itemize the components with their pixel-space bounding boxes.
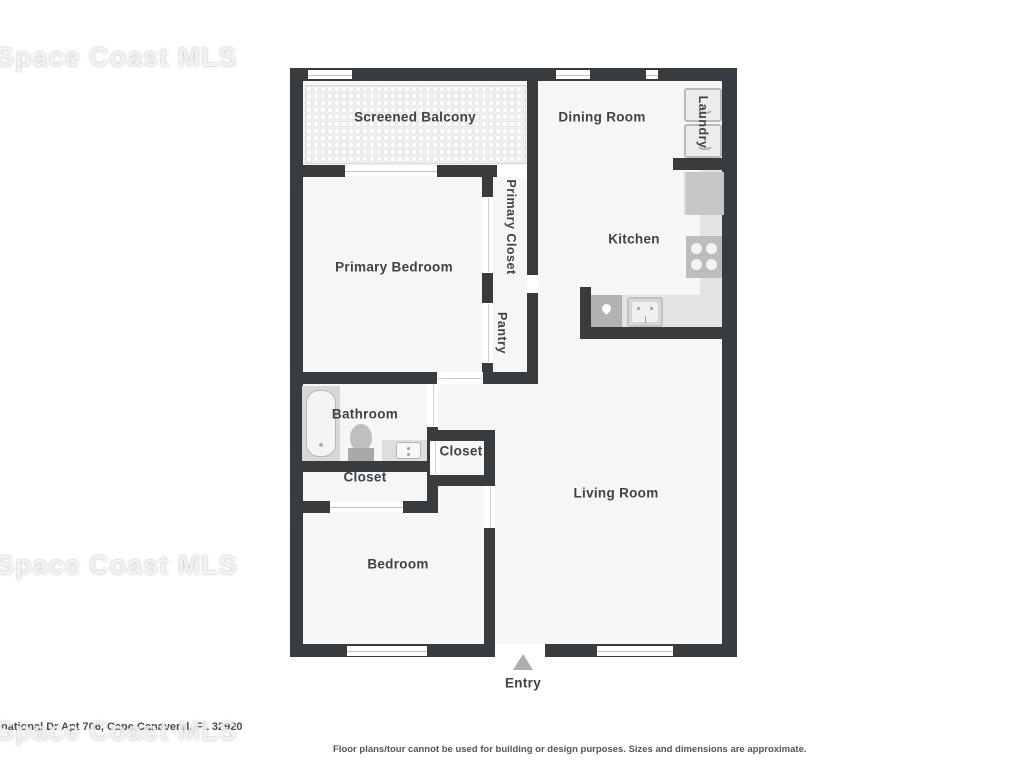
- kitchen-sink-icon: [627, 297, 663, 327]
- wall: [403, 501, 437, 513]
- window: [345, 166, 437, 176]
- disclaimer-text: Floor plans/tour cannot be used for buil…: [333, 744, 807, 755]
- window: [597, 646, 673, 656]
- toilet-tank: [348, 448, 374, 461]
- bathroom-sink-icon: [396, 442, 421, 459]
- floor-plan-page: Space Coast MLS Space Coast MLS Space Co…: [0, 0, 1024, 768]
- room-label-primary-bedroom: Primary Bedroom: [335, 260, 453, 275]
- entry-arrow-icon: [513, 654, 533, 670]
- stove-icon: [686, 236, 722, 278]
- faucet-dot: [637, 307, 640, 310]
- room-label-pantry: Pantry: [495, 312, 509, 354]
- room-label-bedroom: Bedroom: [367, 557, 428, 572]
- window: [308, 70, 352, 79]
- room-label-primary-closet: Primary Closet: [504, 179, 518, 274]
- room-label-closet-hall: Closet: [439, 444, 482, 459]
- window: [330, 502, 403, 512]
- door-gap: [497, 165, 527, 177]
- kitchen-sink-cabinet: [591, 295, 622, 327]
- watermark-space-coast-mls: Space Coast MLS: [0, 550, 238, 581]
- wall: [302, 501, 330, 513]
- bathtub-icon: [302, 386, 340, 461]
- screen-pattern: [305, 85, 526, 164]
- wall: [302, 372, 437, 384]
- bathtub-drain: [319, 443, 323, 447]
- door-gap: [437, 372, 483, 384]
- faucet-dot: [407, 447, 410, 450]
- door-gap: [427, 384, 438, 427]
- room-label-kitchen: Kitchen: [608, 232, 660, 247]
- watermark-space-coast-mls: Space Coast MLS: [0, 42, 238, 73]
- room-label-screened-balcony: Screened Balcony: [354, 110, 476, 125]
- door-gap: [482, 303, 493, 363]
- sink-divider: [645, 316, 646, 323]
- window: [347, 646, 427, 656]
- room-label-closet-bedroom: Closet: [343, 470, 386, 485]
- room-label-bathroom: Bathroom: [332, 407, 398, 422]
- wall: [482, 165, 493, 197]
- floor-plan: Screened Balcony Dining Room Laundry Pri…: [290, 68, 737, 657]
- window: [646, 70, 658, 79]
- burner-icon: [691, 243, 702, 254]
- burner-icon: [706, 259, 717, 270]
- faucet-dot: [650, 307, 653, 310]
- wall: [722, 68, 737, 657]
- toilet-icon: [348, 424, 374, 461]
- burner-icon: [691, 259, 702, 270]
- burner-icon: [706, 243, 717, 254]
- faucet-dot: [407, 453, 410, 456]
- wall: [427, 475, 485, 486]
- vanity-counter: [382, 440, 427, 461]
- wall: [580, 327, 737, 339]
- wall: [673, 158, 737, 170]
- faucet-icon: [600, 302, 613, 315]
- wall: [484, 528, 495, 644]
- wall: [482, 273, 493, 303]
- refrigerator-icon: [684, 172, 724, 215]
- toilet-bowl: [350, 424, 372, 451]
- wall: [527, 177, 538, 275]
- listing-address: national Dr Apt 706, Cape Canaveral, FL …: [1, 721, 242, 733]
- door-gap: [482, 197, 493, 273]
- wall: [483, 372, 538, 384]
- wall: [438, 430, 485, 441]
- wall: [580, 287, 591, 339]
- wall: [290, 68, 737, 81]
- room-label-living-room: Living Room: [573, 486, 658, 501]
- wall: [290, 68, 303, 657]
- room-label-dining-room: Dining Room: [558, 110, 645, 125]
- window: [556, 70, 590, 79]
- wall: [527, 293, 538, 384]
- room-label-laundry: Laundry: [696, 96, 710, 149]
- door-gap: [484, 486, 495, 528]
- wall: [484, 430, 495, 486]
- room-label-entry: Entry: [505, 676, 541, 691]
- wall: [527, 70, 538, 177]
- door-gap: [527, 275, 538, 293]
- wall: [302, 165, 345, 177]
